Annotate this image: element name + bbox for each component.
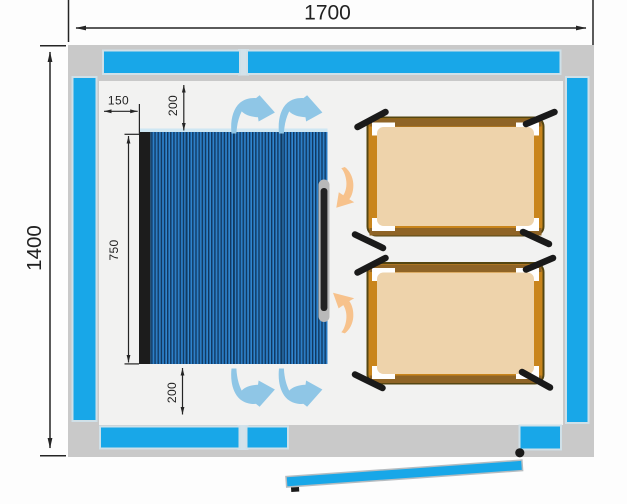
svg-text:200: 200 bbox=[165, 382, 179, 403]
svg-text:1700: 1700 bbox=[304, 2, 351, 25]
svg-text:150: 150 bbox=[108, 94, 129, 108]
svg-text:1400: 1400 bbox=[23, 225, 46, 271]
svg-text:750: 750 bbox=[107, 239, 121, 260]
svg-text:200: 200 bbox=[166, 95, 180, 116]
